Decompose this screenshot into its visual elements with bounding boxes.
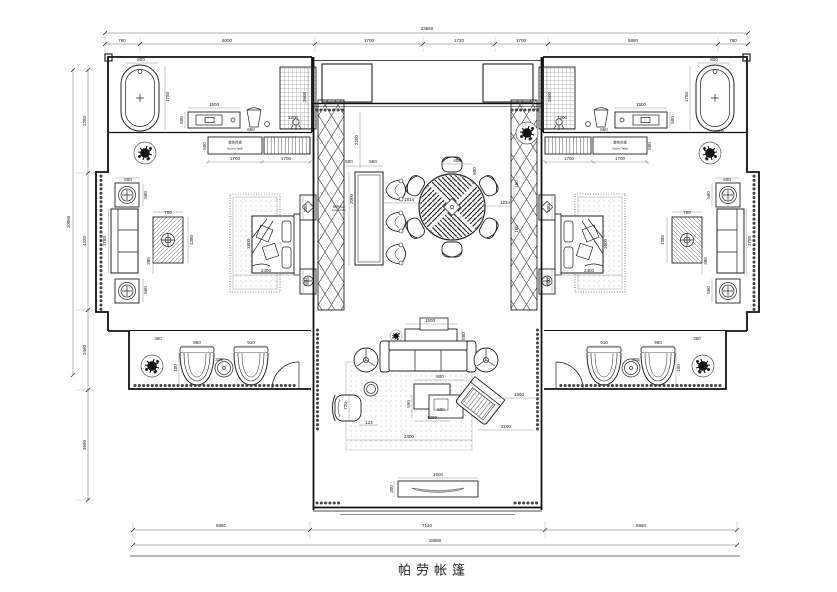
dining-chair [386, 179, 406, 201]
sofa-console [405, 318, 457, 342]
canopy-closet [483, 64, 533, 102]
living-sofa [380, 341, 476, 372]
left-wing [96, 54, 316, 389]
canopy-closet [322, 64, 372, 102]
potted-plant [516, 122, 538, 144]
dimension-lines [71, 31, 750, 547]
floor-plan-page: 2366078060001700172017005880780100602280… [0, 0, 837, 592]
round-dining-table [404, 157, 501, 257]
plan-title: 帕劳帐篷 [398, 560, 470, 579]
floor-lamp [390, 330, 402, 342]
side-table-round [354, 348, 378, 372]
floor-plan-drawing [0, 0, 837, 592]
right-wing [539, 54, 759, 389]
dining-console [355, 172, 383, 265]
side-table-small [364, 382, 378, 396]
side-table-round [474, 348, 498, 372]
lounge-bench [333, 395, 362, 421]
lattice-screen [318, 100, 344, 310]
dining-chair [386, 243, 406, 265]
tv-console [398, 481, 478, 497]
dining-chair [386, 211, 406, 233]
center-section [313, 57, 542, 515]
